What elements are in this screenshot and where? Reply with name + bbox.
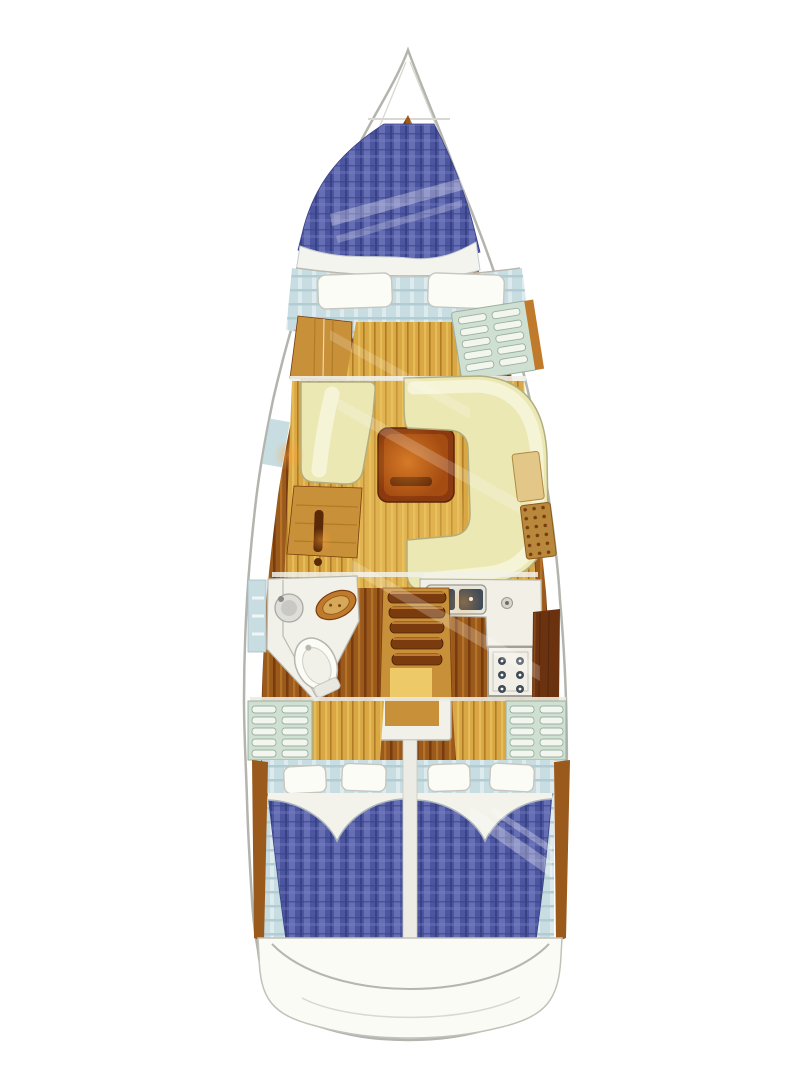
steps-rail bbox=[373, 698, 451, 740]
glow-galley-floor bbox=[446, 584, 482, 620]
steps-landing bbox=[390, 668, 432, 698]
mid-floor-left bbox=[312, 701, 384, 760]
forward-shelf-slats bbox=[451, 300, 544, 382]
salon bbox=[262, 376, 556, 590]
starboard-locker-shelves bbox=[506, 701, 566, 760]
forward-pillow-right bbox=[427, 273, 504, 310]
aft-cabins bbox=[252, 740, 570, 942]
aft-pillow-1 bbox=[283, 765, 326, 794]
side-cabinet-cane bbox=[520, 502, 556, 559]
desk-knob bbox=[314, 558, 322, 566]
transom bbox=[258, 938, 562, 1038]
head-sink bbox=[275, 594, 303, 622]
floorplan-svg: Sailing yacht interior layout floor plan… bbox=[0, 0, 810, 1080]
glow-desk bbox=[309, 528, 333, 552]
aft-pillow-2 bbox=[342, 763, 387, 792]
v-berth-mattress bbox=[298, 124, 480, 263]
galley-dark-cabinet bbox=[532, 609, 560, 703]
side-cabinet-panel bbox=[512, 451, 545, 502]
forward-cabin bbox=[286, 124, 544, 382]
aft-bulkhead-line bbox=[250, 697, 566, 701]
glow-port-side bbox=[273, 439, 305, 471]
aft-trim-starboard bbox=[554, 760, 570, 942]
port-locker-shelves bbox=[248, 701, 312, 760]
aft-pillow-4 bbox=[489, 763, 534, 792]
galley-bulkhead-line bbox=[272, 572, 538, 577]
nav-desk bbox=[287, 486, 362, 566]
aft-pillow-3 bbox=[428, 763, 471, 791]
cabin-divider bbox=[403, 740, 417, 942]
boat-floorplan: Sailing yacht interior layout floor plan… bbox=[0, 0, 810, 1080]
mid-floor-right bbox=[452, 701, 506, 760]
galley-drain bbox=[502, 598, 513, 609]
wardrobe bbox=[290, 316, 352, 380]
forward-pillow-left bbox=[317, 273, 392, 310]
